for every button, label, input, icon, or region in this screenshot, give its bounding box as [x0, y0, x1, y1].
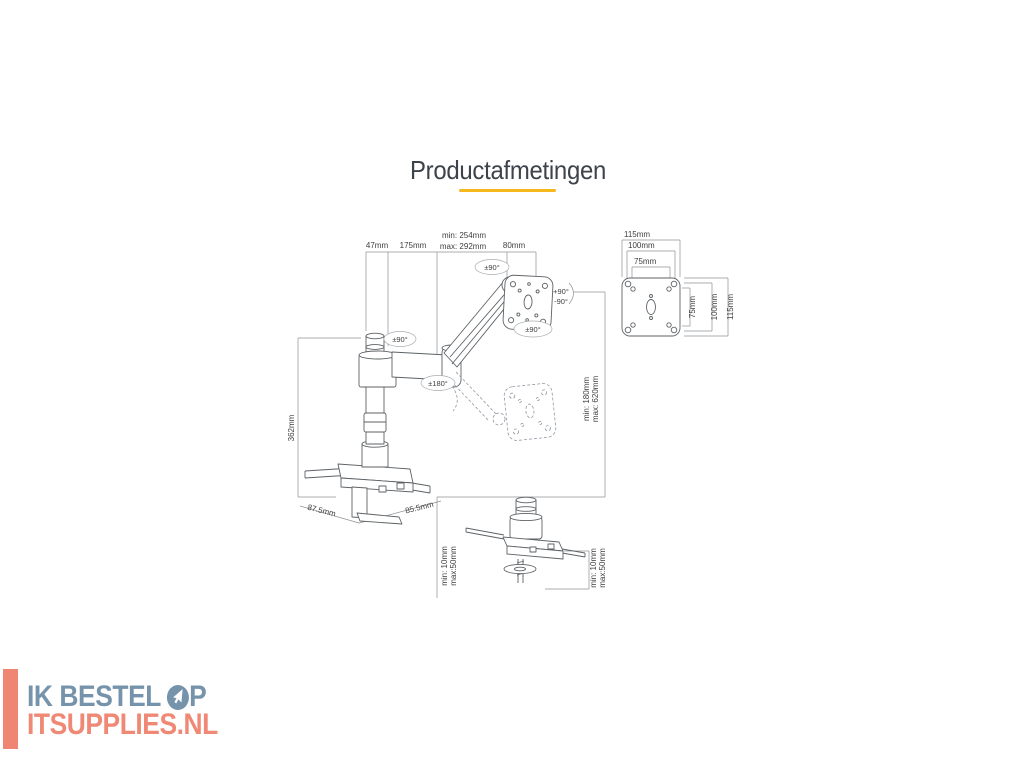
- dim-max620-label: max: 620mm: [591, 376, 600, 423]
- dim-85-5mm-label: 85.5mm: [404, 500, 435, 516]
- dim-80mm-label: 80mm: [503, 241, 526, 250]
- clamp-thickness-min-label: min: 10mm: [440, 546, 449, 586]
- dim-min180-label: min: 180mm: [582, 377, 591, 421]
- dim-max292-label: max: 292mm: [440, 242, 487, 251]
- cable-clip: [364, 413, 386, 432]
- vesa-plate-detail: [622, 278, 680, 336]
- cursor-icon: [167, 685, 189, 710]
- vesa-115mm-h-label: 115mm: [624, 230, 650, 239]
- dim-362mm-label: 362mm: [287, 414, 296, 441]
- rotation-pole-label: ±90°: [392, 335, 407, 344]
- product-dimensions-diagram: ±90° ±90° ±180° ±90° +90° -90° 47mm 175m…: [0, 0, 1024, 768]
- dim-87-5mm-label: 87.5mm: [306, 503, 337, 519]
- logo-line1: IK BESTEL P: [27, 684, 206, 710]
- tilt-down-label: -90°: [554, 297, 568, 306]
- grommet-thickness-max-label: max:50mm: [598, 548, 607, 588]
- vesa-115mm-v-label: 115mm: [726, 294, 735, 320]
- rotation-elbow-label: ±180°: [428, 379, 448, 388]
- logo-line2: ITSUPPLIES.NL: [27, 711, 218, 738]
- clamp-thickness-max-label: max:50mm: [449, 546, 458, 586]
- vesa-75mm-v-label: 75mm: [688, 296, 697, 319]
- arm-collar: [359, 355, 396, 387]
- logo-text-p: P: [189, 684, 206, 710]
- page: Productafmetingen: [0, 0, 1024, 768]
- vesa-100mm-v-label: 100mm: [710, 293, 719, 320]
- vesa-100mm-h-label: 100mm: [628, 241, 655, 250]
- tilt-up-label: +90°: [553, 287, 569, 296]
- logo-accent-bar: [3, 669, 18, 749]
- grommet-mount-detail: [466, 497, 585, 583]
- vesa-75mm-h-label: 75mm: [634, 257, 657, 266]
- desk-clamp: [338, 464, 413, 524]
- dim-min254-label: min: 254mm: [442, 231, 486, 240]
- grommet-thickness-min-label: min: 10mm: [589, 548, 598, 588]
- rotation-plate-label: ±90°: [525, 325, 540, 334]
- dim-175mm-label: 175mm: [400, 241, 427, 250]
- logo-text-ik-bestel: IK BESTEL: [27, 684, 161, 710]
- ghost-arm-position: [448, 372, 557, 441]
- dim-47mm-label: 47mm: [366, 241, 389, 250]
- arm-assembly: [305, 275, 553, 524]
- rotation-top-label: ±90°: [484, 263, 499, 272]
